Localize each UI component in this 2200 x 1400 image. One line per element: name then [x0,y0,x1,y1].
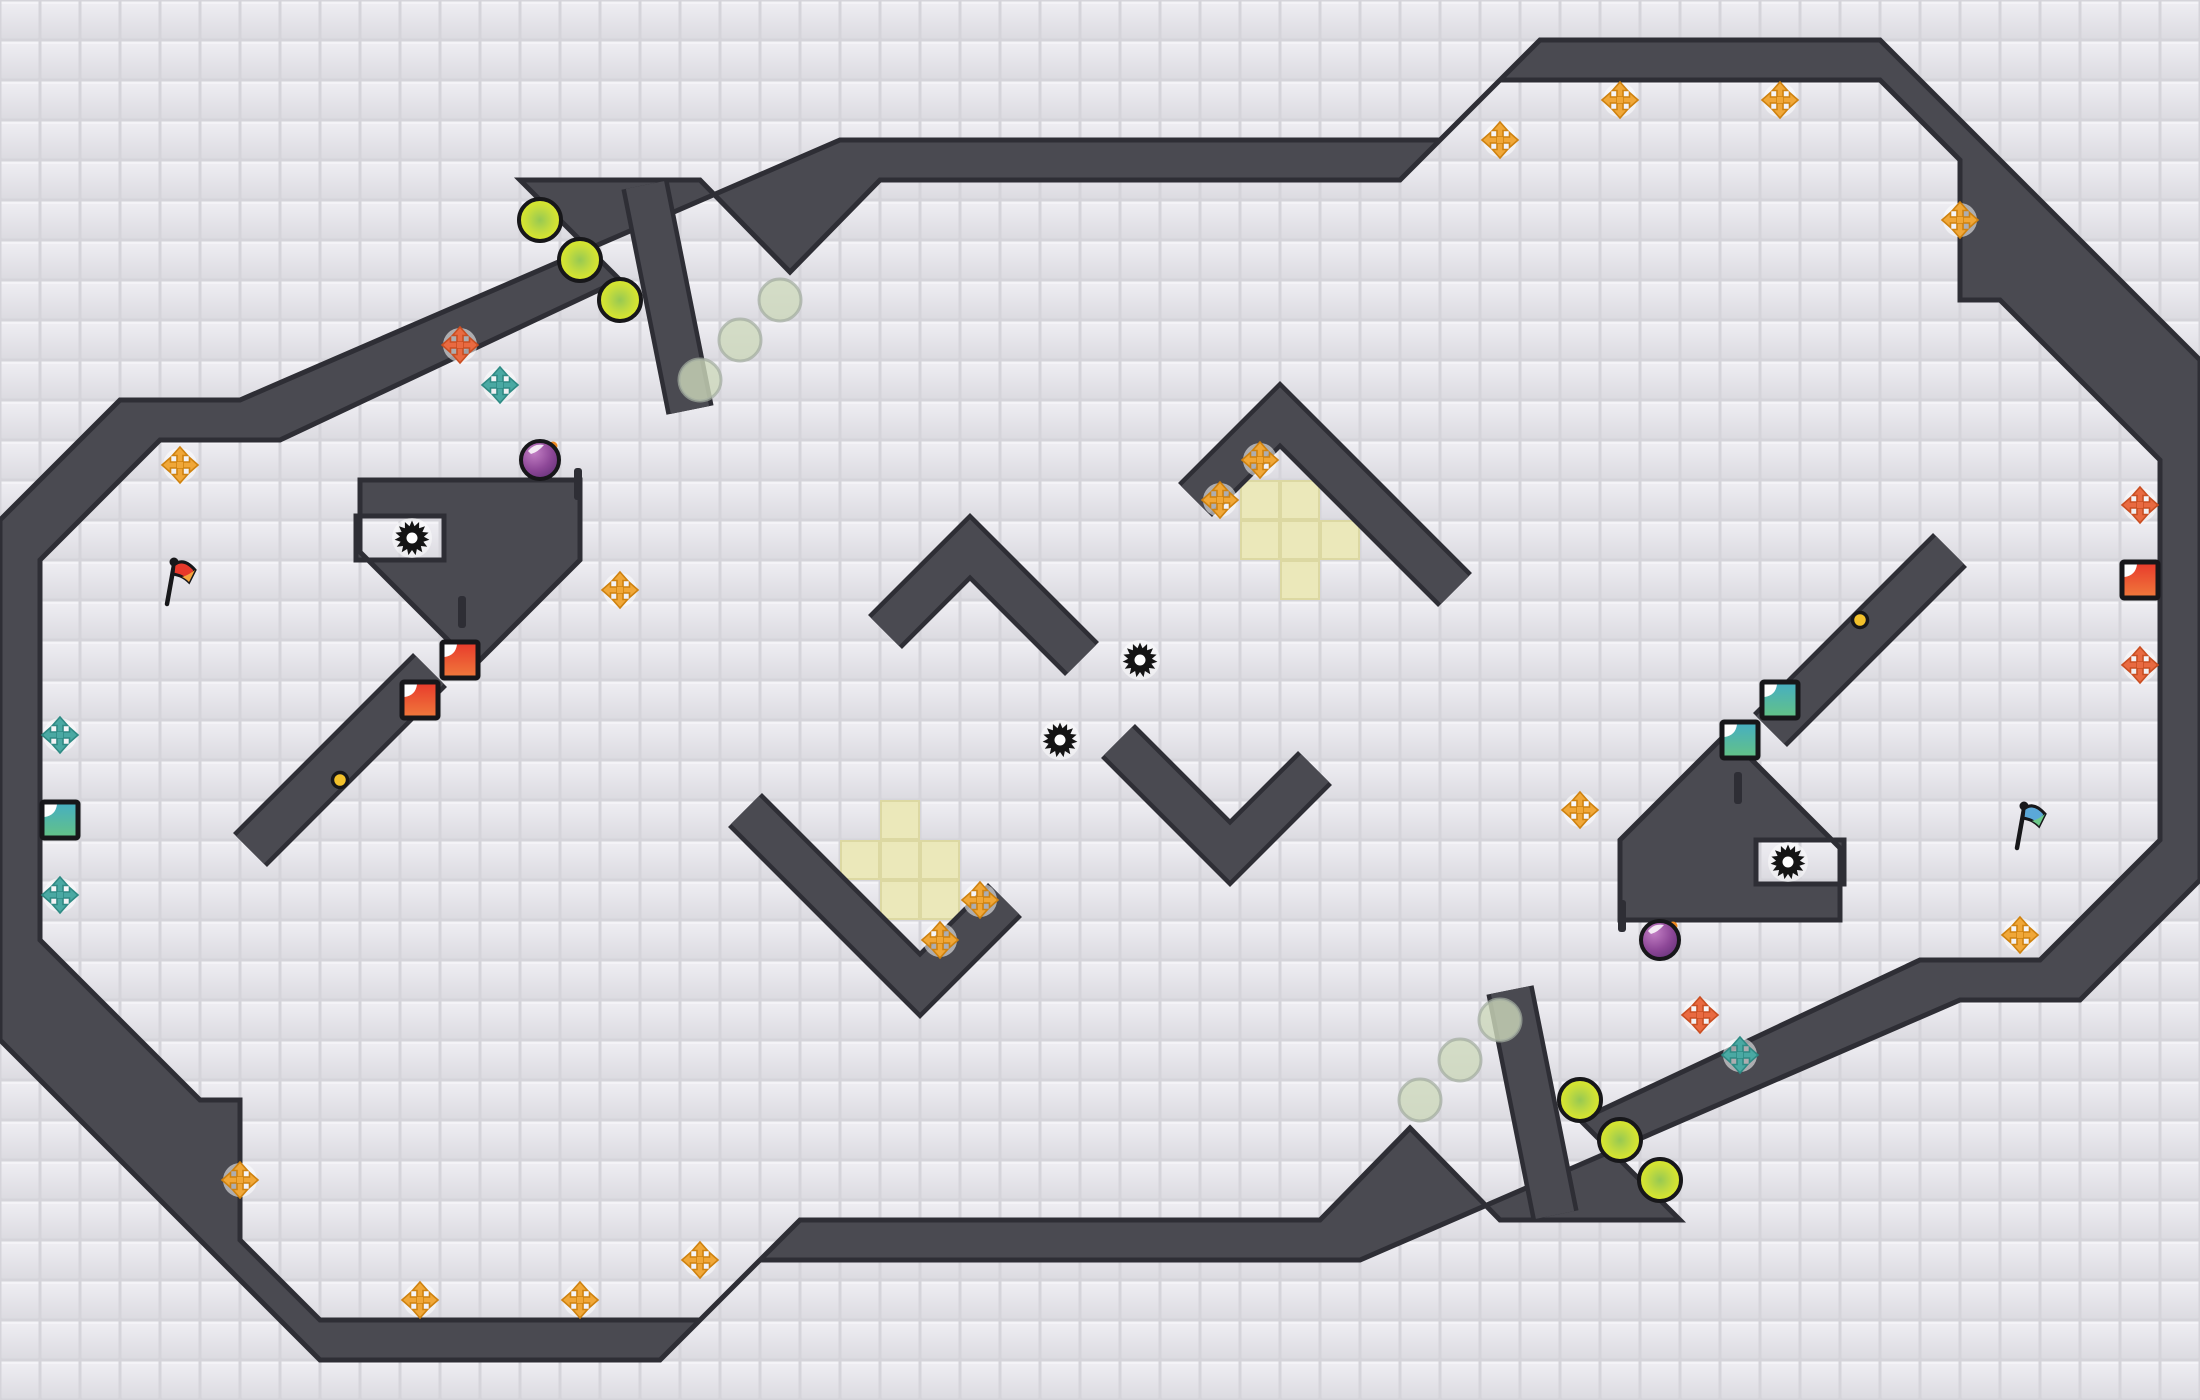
teal-door-square-icon [42,802,78,838]
green-orb-icon [1639,1159,1681,1201]
highlight-tile [1281,561,1319,599]
level-canvas [0,0,2200,1400]
highlight-tile [1281,481,1319,519]
teal-door-square-icon [1762,682,1798,718]
door-tick [458,596,466,628]
bomb-icon [521,441,559,479]
green-orb-icon [559,239,601,281]
highlight-tile [841,841,879,879]
gold-dot-icon [1853,613,1868,628]
green-orb-icon [519,199,561,241]
highlight-tile [1241,481,1279,519]
bomb-icon [1641,921,1679,959]
highlight-tile [881,801,919,839]
highlight-tile [1241,521,1279,559]
ghost-orb-icon [759,279,801,321]
green-orb-icon [1559,1079,1601,1121]
highlight-tile [921,841,959,879]
door-tick [1618,900,1626,932]
mine-icon [1120,640,1160,680]
green-orb-icon [1599,1119,1641,1161]
ghost-orb-icon [1399,1079,1441,1121]
red-door-square-icon [442,642,478,678]
highlight-tile [1321,521,1359,559]
teal-door-square-icon [1722,722,1758,758]
ghost-orb-icon [1439,1039,1481,1081]
highlight-tile [881,841,919,879]
highlight-tile [1281,521,1319,559]
door-tick [574,468,582,500]
highlight-tile [881,881,919,919]
door-tick [1734,772,1742,804]
green-orb-icon [599,279,641,321]
red-door-square-icon [2122,562,2158,598]
floor-tiles [0,0,2200,1400]
game-level-map[interactable] [0,0,2200,1400]
ghost-orb-icon [679,359,721,401]
mine-icon [1768,842,1808,882]
mine-icon [1040,720,1080,760]
red-door-square-icon [402,682,438,718]
ghost-orb-icon [1479,999,1521,1041]
gold-dot-icon [333,773,348,788]
mine-icon [392,518,432,558]
ghost-orb-icon [719,319,761,361]
highlight-tile [921,881,959,919]
